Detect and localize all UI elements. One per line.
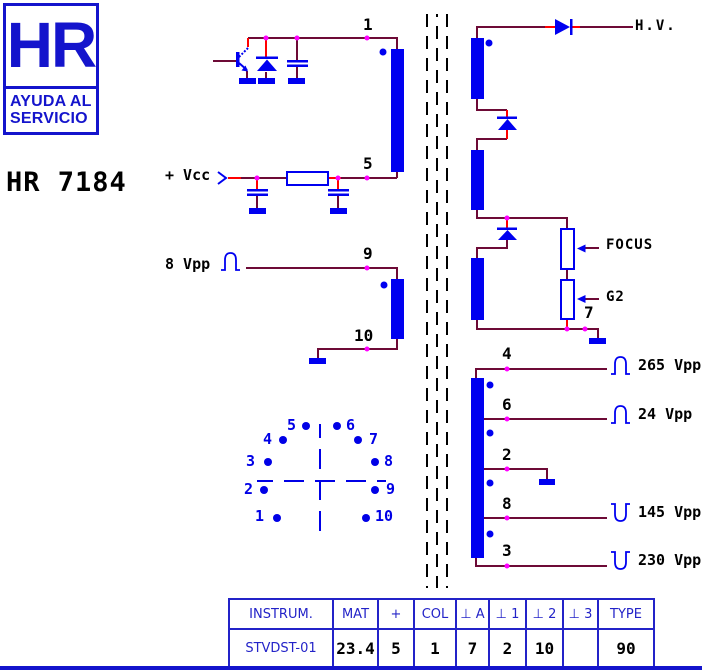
spec-value-instrum: STVDST-01	[229, 629, 333, 667]
hr-logo: HR AYUDA AL SERVICIO	[3, 3, 99, 135]
pin-label-3: 3	[502, 543, 512, 559]
pulse-pos-8vpp-icon	[221, 253, 240, 270]
pin-label-4: 4	[502, 346, 512, 362]
vpp265-label: 265 Vpp	[638, 358, 701, 373]
spec-value-plus: 5	[378, 629, 414, 667]
pinout-label-3: 3	[246, 454, 255, 469]
winding-9-10	[391, 279, 404, 339]
winding-hv-top	[471, 38, 484, 99]
pinout-pin-6	[333, 422, 341, 430]
spec-header-row: INSTRUM. MAT + COL ⊥ A ⊥ 1 ⊥ 2 ⊥ 3 TYPE	[229, 599, 654, 629]
spec-header-mat: MAT	[333, 599, 378, 629]
hv-output-diode-icon	[555, 19, 573, 35]
spec-header-col: COL	[414, 599, 456, 629]
spec-header-gnd-3: ⊥ 3	[563, 599, 598, 629]
winding-hv-bot	[471, 258, 484, 320]
spec-header-type: TYPE	[598, 599, 654, 629]
pinout-label-7: 7	[369, 432, 378, 447]
vpp230-label: 230 Vpp	[638, 553, 701, 568]
vpp8-wiring	[246, 268, 397, 358]
vcc-label: + Vcc	[165, 168, 210, 183]
pinout-label-9: 9	[386, 482, 395, 497]
spec-value-gnd-a: 7	[456, 629, 489, 667]
g2-label: G2	[606, 290, 625, 304]
vcc-resistor	[287, 172, 328, 185]
logo-slogan: AYUDA AL SERVICIO	[6, 89, 96, 128]
pulse-neg-145vpp-icon	[611, 504, 630, 521]
model-title: HR 7184	[6, 167, 127, 198]
pinout-pin-1	[273, 514, 281, 522]
pin-label-6: 6	[502, 397, 512, 413]
secondary-wiring	[476, 369, 607, 566]
spec-value-gnd-3	[563, 629, 598, 667]
g2-resistor	[561, 280, 574, 319]
damper-diode-icon	[256, 57, 278, 72]
hv-rect-diode-2-icon	[497, 228, 517, 241]
spec-value-col: 1	[414, 629, 456, 667]
spec-value-row: STVDST-01 23.4 5 1 7 2 10 90	[229, 629, 654, 667]
pin-label-1: 1	[363, 17, 373, 33]
spec-header-plus: +	[378, 599, 414, 629]
pinout-pin-5	[302, 422, 310, 430]
pin-label-7: 7	[584, 305, 594, 321]
left-primary-wiring	[213, 38, 397, 78]
focus-arrow-icon	[577, 245, 586, 253]
focus-label: FOCUS	[606, 238, 653, 252]
core-lines	[427, 14, 447, 588]
spec-value-gnd-2: 10	[526, 629, 563, 667]
pulse-pos-24vpp-icon	[611, 406, 630, 423]
pinout-label-1: 1	[255, 509, 264, 524]
logo-slogan-line2: SERVICIO	[10, 111, 96, 128]
winding-hv-mid	[471, 150, 484, 210]
pin-label-10: 10	[354, 328, 373, 344]
vcc-input-icon	[218, 172, 226, 184]
vpp24-label: 24 Vpp	[638, 407, 692, 422]
vpp145-label: 145 Vpp	[638, 505, 701, 520]
hv-rect-diode-1-icon	[497, 117, 517, 131]
logo-slogan-line1: AYUDA AL	[10, 94, 96, 111]
pin-label-5: 5	[363, 156, 373, 172]
pinout-pin-9	[371, 486, 379, 494]
pinout-label-2: 2	[244, 482, 253, 497]
pinout-label-6: 6	[346, 418, 355, 433]
spec-value-type: 90	[598, 629, 654, 667]
focus-resistor	[561, 229, 574, 269]
pin-label-8: 8	[502, 496, 512, 512]
pulse-neg-230vpp-icon	[611, 552, 630, 569]
schematic-graphics	[0, 0, 702, 670]
logo-hr-text: HR	[6, 6, 96, 89]
winding-primary-1-5	[391, 49, 404, 172]
spec-value-gnd-1: 2	[489, 629, 526, 667]
pinout-pin-7	[354, 436, 362, 444]
spec-header-gnd-1: ⊥ 1	[489, 599, 526, 629]
junction-dots	[255, 36, 588, 569]
spec-header-gnd-a: ⊥ A	[456, 599, 489, 629]
pin-label-9: 9	[363, 246, 373, 262]
transistor-icon	[236, 48, 248, 72]
spec-header-instrum: INSTRUM.	[229, 599, 333, 629]
pulse-pos-265vpp-icon	[611, 357, 630, 374]
vpp8-label: 8 Vpp	[165, 257, 210, 272]
spec-table: INSTRUM. MAT + COL ⊥ A ⊥ 1 ⊥ 2 ⊥ 3 TYPE …	[228, 598, 655, 668]
flyback-schematic-page: HR AYUDA AL SERVICIO HR 7184 + Vcc 8 Vpp…	[0, 0, 702, 670]
bottom-rule	[0, 666, 702, 670]
pin-label-2: 2	[502, 447, 512, 463]
pinout-pin-3	[264, 458, 272, 466]
pinout-pin-2	[260, 486, 268, 494]
pinout-label-8: 8	[384, 454, 393, 469]
pinout-label-4: 4	[263, 432, 272, 447]
pinout-label-5: 5	[287, 418, 296, 433]
pinout-pin-10	[362, 514, 370, 522]
spec-value-mat: 23.4	[333, 629, 378, 667]
pinout-label-10: 10	[375, 509, 393, 524]
pinout-pin-8	[371, 458, 379, 466]
winding-secondary	[471, 378, 484, 558]
pinout-pin-4	[279, 436, 287, 444]
g2-arrow-icon	[577, 295, 586, 303]
hv-label: H.V.	[635, 19, 677, 33]
spec-header-gnd-2: ⊥ 2	[526, 599, 563, 629]
